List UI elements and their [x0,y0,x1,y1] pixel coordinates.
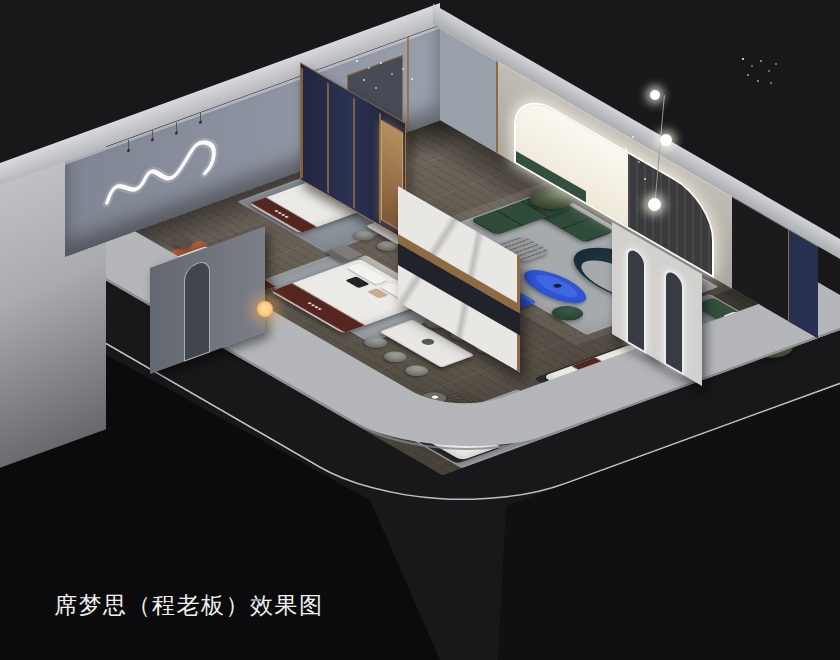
brass-slat-2 [327,83,329,194]
floor-lamp-globe-2 [660,134,672,146]
brass-slat-3 [353,98,355,209]
standing-mirror [184,258,210,361]
floor-lamp-globe-3 [648,198,661,211]
floor-lamp-globe-1 [650,90,660,100]
interior-render: 席梦思（程老板）效果图 [0,0,840,660]
brass-trim [407,37,409,133]
copper-string-lights [742,58,744,60]
chandelier-sparkles-living [572,138,574,140]
bedside-glow-lamp [256,300,274,318]
arch-mirror-2 [664,266,684,376]
chandelier-sparkles-dining [356,60,358,62]
brass-slat-1 [301,68,303,179]
arch-mirror-1 [626,244,646,354]
navy-wall-panel [788,230,818,338]
render-caption: 席梦思（程老板）效果图 [54,590,324,621]
